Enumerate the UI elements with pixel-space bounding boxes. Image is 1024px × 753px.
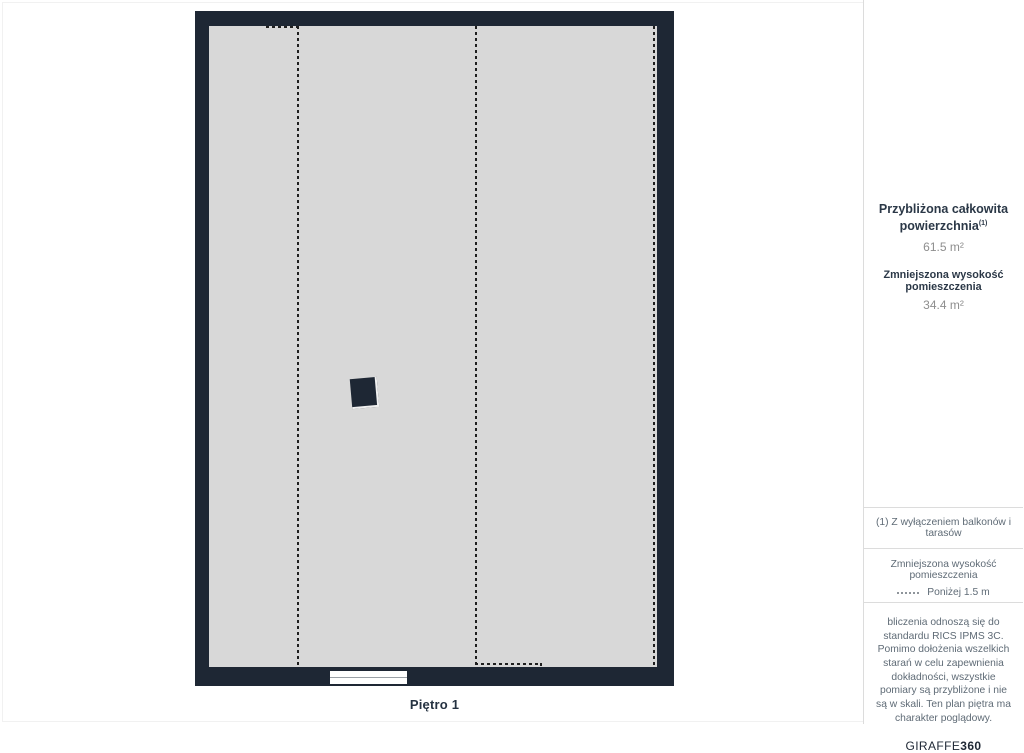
reduced-height-boundary-middle-tick: [540, 663, 542, 667]
dashed-line-icon: [897, 592, 920, 594]
reduced-height-boundary-middle: [475, 26, 477, 665]
legend-section: Zmniejszona wysokość pomieszczenia Poniż…: [864, 548, 1023, 603]
legend-title: Zmniejszona wysokość pomieszczenia: [864, 559, 1023, 581]
floor-plan: [195, 11, 674, 686]
total-area-value: 61.5 m²: [864, 240, 1023, 254]
window: [330, 671, 407, 684]
window-glass-line: [330, 677, 407, 678]
total-area-label: Przybliżona całkowita powierzchnia(1): [864, 201, 1023, 235]
disclaimer-section: bliczenia odnoszą się do standardu RICS …: [864, 603, 1023, 724]
info-panel: Przybliżona całkowita powierzchnia(1) 61…: [863, 0, 1023, 724]
disclaimer-text: bliczenia odnoszą się do standardu RICS …: [876, 616, 1012, 726]
pillar: [350, 377, 380, 409]
footnote-section: (1) Z wyłączeniem balkonów i tarasów: [864, 507, 1023, 549]
brand-name-bold: 360: [960, 739, 981, 753]
footnote-marker: (1): [979, 220, 988, 227]
summary-section: Przybliżona całkowita powierzchnia(1) 61…: [864, 0, 1023, 508]
reduced-height-boundary-middle-bottom: [475, 663, 542, 665]
brand-name-regular: GIRAFFE: [905, 739, 960, 753]
legend-item-label: Poniżej 1.5 m: [927, 587, 989, 598]
brand-logo: GIRAFFE360: [864, 739, 1023, 753]
reduced-height-label: Zmniejszona wysokość pomieszczenia: [864, 269, 1023, 293]
reduced-height-boundary-left: [297, 26, 299, 667]
floor-interior: [209, 26, 657, 667]
reduced-height-value: 34.4 m²: [864, 298, 1023, 312]
floor-label: Piętro 1: [195, 697, 674, 712]
reduced-height-boundary-top-stub: [266, 26, 299, 28]
footnote-text: (1) Z wyłączeniem balkonów i tarasów: [864, 517, 1023, 539]
reduced-height-boundary-right: [653, 26, 655, 667]
